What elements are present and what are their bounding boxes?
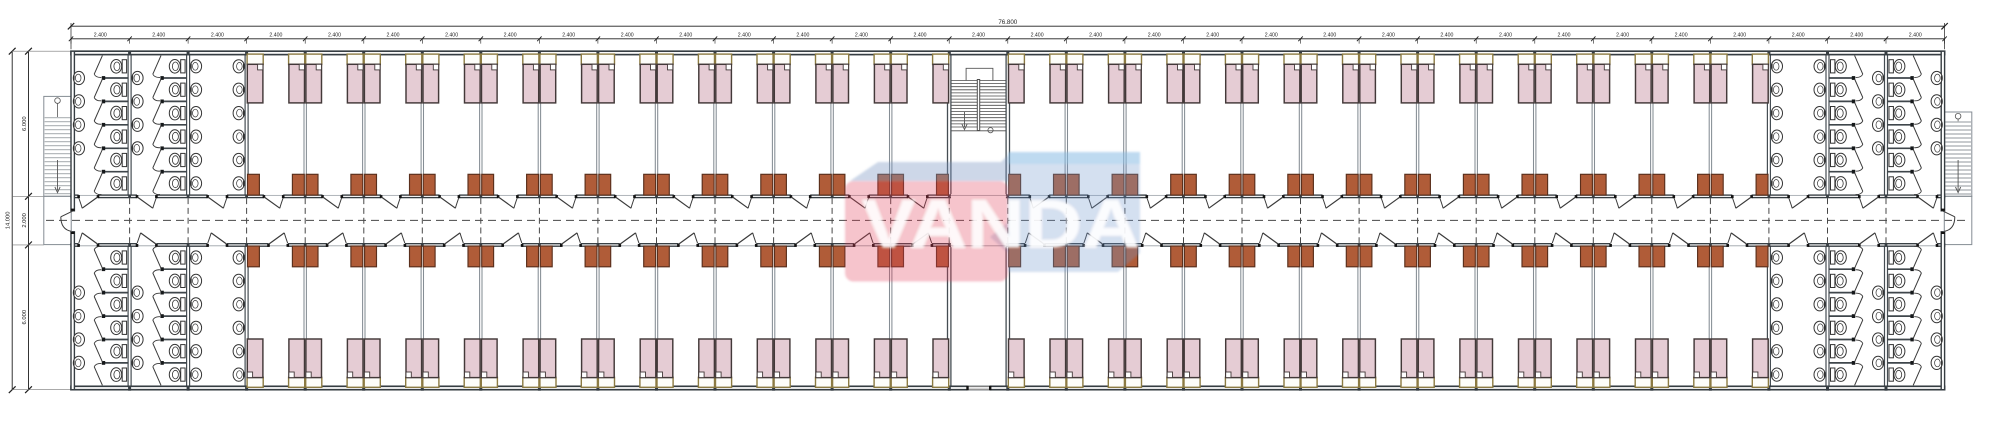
svg-text:2.400: 2.400 xyxy=(445,32,458,38)
svg-text:2.400: 2.400 xyxy=(387,32,400,38)
svg-text:2.400: 2.400 xyxy=(914,32,927,38)
svg-text:76.800: 76.800 xyxy=(998,19,1017,26)
svg-text:2.400: 2.400 xyxy=(796,32,809,38)
svg-text:2.400: 2.400 xyxy=(211,32,224,38)
svg-text:2.400: 2.400 xyxy=(1733,32,1746,38)
svg-text:2.400: 2.400 xyxy=(1616,32,1629,38)
svg-text:2.400: 2.400 xyxy=(621,32,634,38)
svg-text:2.400: 2.400 xyxy=(1323,32,1336,38)
svg-text:2.400: 2.400 xyxy=(504,32,517,38)
svg-text:2.400: 2.400 xyxy=(328,32,341,38)
svg-text:2.400: 2.400 xyxy=(1850,32,1863,38)
svg-text:2.400: 2.400 xyxy=(1089,32,1102,38)
svg-text:2.400: 2.400 xyxy=(738,32,751,38)
svg-text:2.400: 2.400 xyxy=(1909,32,1922,38)
svg-text:2.400: 2.400 xyxy=(269,32,282,38)
svg-text:6.000: 6.000 xyxy=(22,116,28,131)
svg-text:2.400: 2.400 xyxy=(1675,32,1688,38)
svg-text:2.400: 2.400 xyxy=(1382,32,1395,38)
svg-text:2.400: 2.400 xyxy=(1031,32,1044,38)
svg-text:2.400: 2.400 xyxy=(1558,32,1571,38)
svg-text:2.400: 2.400 xyxy=(679,32,692,38)
svg-text:2.000: 2.000 xyxy=(22,213,28,228)
svg-text:VANDA: VANDA xyxy=(862,186,1140,263)
svg-text:2.400: 2.400 xyxy=(1265,32,1278,38)
svg-text:6.000: 6.000 xyxy=(22,310,28,325)
svg-text:2.400: 2.400 xyxy=(855,32,868,38)
svg-text:2.400: 2.400 xyxy=(1440,32,1453,38)
svg-text:2.400: 2.400 xyxy=(152,32,165,38)
svg-text:2.400: 2.400 xyxy=(1792,32,1805,38)
svg-text:2.400: 2.400 xyxy=(1499,32,1512,38)
svg-text:2.400: 2.400 xyxy=(1148,32,1161,38)
svg-text:2.400: 2.400 xyxy=(972,32,985,38)
svg-text:14.000: 14.000 xyxy=(6,212,12,230)
svg-text:2.400: 2.400 xyxy=(562,32,575,38)
svg-text:2.400: 2.400 xyxy=(94,32,107,38)
svg-text:2.400: 2.400 xyxy=(1206,32,1219,38)
